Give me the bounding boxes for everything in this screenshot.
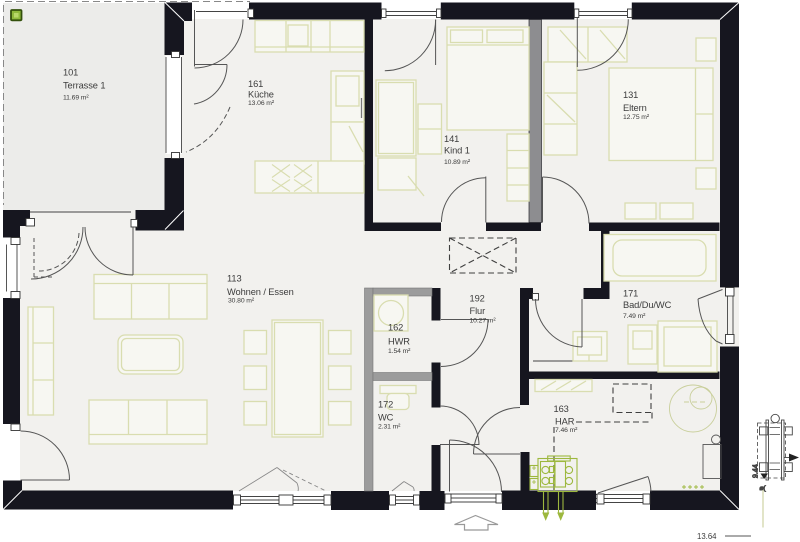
svg-text:13.06 m²: 13.06 m²	[248, 100, 275, 107]
svg-text:13.64: 13.64	[697, 532, 717, 541]
svg-text:171: 171	[623, 289, 638, 299]
svg-text:30.80 m²: 30.80 m²	[228, 298, 255, 305]
svg-text:163: 163	[554, 404, 569, 414]
svg-text:172: 172	[378, 400, 393, 410]
svg-text:Küche: Küche	[248, 90, 274, 100]
svg-text:131: 131	[623, 90, 638, 100]
svg-text:9.44: 9.44	[753, 464, 760, 478]
svg-text:12.75 m²: 12.75 m²	[623, 114, 650, 121]
svg-text:161: 161	[248, 79, 263, 89]
svg-text:Eltern: Eltern	[623, 103, 647, 113]
svg-text:Wohnen / Essen: Wohnen / Essen	[227, 287, 294, 297]
svg-text:1.54 m²: 1.54 m²	[388, 348, 411, 355]
svg-text:7.49 m²: 7.49 m²	[623, 313, 646, 320]
svg-text:Kind 1: Kind 1	[444, 146, 470, 156]
svg-text:HWR: HWR	[388, 337, 410, 347]
svg-text:7.46 m²: 7.46 m²	[555, 427, 578, 434]
svg-text:⌀(: ⌀(	[760, 485, 767, 492]
svg-text:10.27 m²: 10.27 m²	[470, 318, 497, 325]
svg-text:WC: WC	[378, 413, 394, 423]
svg-text:HAR: HAR	[555, 417, 575, 427]
svg-text:2.31 m²: 2.31 m²	[378, 424, 401, 431]
svg-text:141: 141	[444, 134, 459, 144]
svg-text:10.89 m²: 10.89 m²	[444, 159, 471, 166]
svg-text:11.69 m²: 11.69 m²	[63, 95, 89, 102]
svg-text:Flur: Flur	[470, 306, 486, 316]
svg-text:Bad/Du/WC: Bad/Du/WC	[623, 300, 672, 310]
svg-text:101: 101	[63, 68, 78, 78]
svg-text:Terrasse 1: Terrasse 1	[63, 81, 105, 91]
svg-text:162: 162	[388, 323, 403, 333]
svg-text:192: 192	[470, 294, 485, 304]
svg-text:113: 113	[227, 274, 242, 284]
